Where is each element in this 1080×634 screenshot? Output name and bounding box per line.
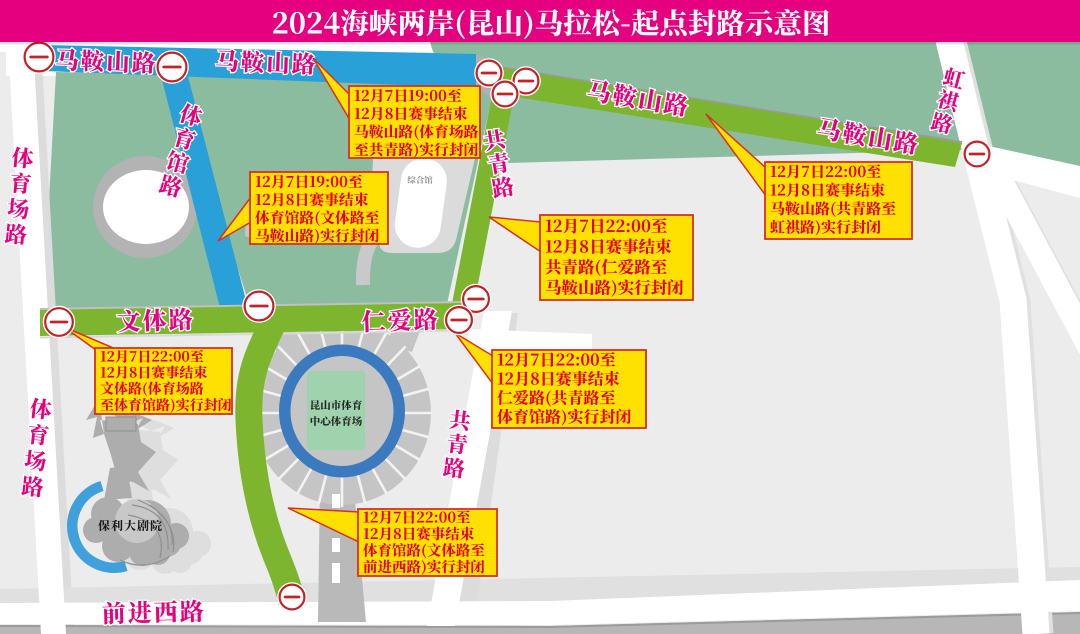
svg-text:体育馆路)实行封闭: 体育馆路)实行封闭 (497, 405, 632, 428)
svg-text:马鞍山路: 马鞍山路 (215, 42, 318, 80)
svg-text:至体育馆路)实行封闭: 至体育馆路)实行封闭 (100, 395, 232, 415)
svg-text:2024海峡两岸(昆山)马拉松-起点封路示意图: 2024海峡两岸(昆山)马拉松-起点封路示意图 (272, 2, 831, 43)
svg-text:仁爱路: 仁爱路 (361, 300, 440, 338)
svg-text:综合馆: 综合馆 (407, 174, 433, 186)
svg-text:虹祺路)实行封闭: 虹祺路)实行封闭 (770, 217, 881, 238)
svg-text:中心体育场: 中心体育场 (310, 414, 363, 429)
svg-text:前进西路: 前进西路 (101, 592, 206, 630)
svg-text:马鞍山路)实行封闭: 马鞍山路)实行封闭 (545, 274, 684, 298)
svg-text:至共青路)实行封闭: 至共青路)实行封闭 (354, 139, 479, 160)
svg-text:马鞍山路: 马鞍山路 (55, 41, 158, 79)
svg-text:文体路: 文体路 (116, 300, 195, 338)
svg-text:马鞍山路)实行封闭: 马鞍山路)实行封闭 (255, 225, 380, 246)
svg-text:前进西路)实行封闭: 前进西路)实行封闭 (363, 556, 485, 577)
svg-text:昆山市体育: 昆山市体育 (310, 398, 363, 413)
svg-text:保利大剧院: 保利大剧院 (98, 517, 163, 534)
